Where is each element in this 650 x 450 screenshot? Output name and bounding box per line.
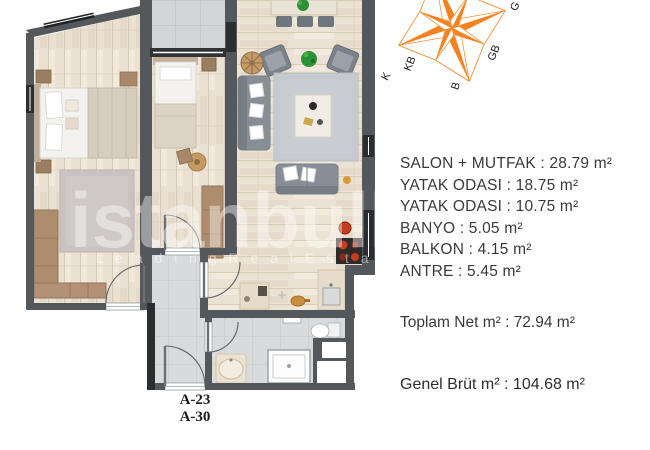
balcony-floor [150, 0, 225, 48]
chaise-sofa [238, 76, 270, 150]
kitchen-sink [323, 288, 340, 305]
nightstand [202, 58, 216, 71]
pillow [249, 125, 263, 139]
toilet [311, 323, 340, 338]
unit-number-label: A-23 A-30 [150, 392, 240, 426]
compass-label-northwest: KB [402, 55, 419, 73]
floor-plan-page: istanbulh L e a d i n g R e a l E s t a … [0, 0, 650, 450]
wall-step [345, 265, 375, 275]
shower [268, 350, 310, 383]
watermark: istanbulh L e a d i n g R e a l E s t a [70, 176, 417, 266]
compass-label-south: G [508, 0, 523, 13]
wall-left [26, 33, 34, 310]
compass-label-southwest: GB [486, 43, 503, 62]
round-decor-table [241, 52, 263, 74]
coffee-table [295, 95, 331, 137]
chair [177, 148, 193, 164]
wall [26, 303, 106, 310]
total-gross-area: Genel Brüt m² : 104.68 m² [400, 376, 585, 394]
nightstand [36, 70, 51, 83]
room-area-list: SALON + MUTFAK : 28.79 m² YATAK ODASI : … [400, 153, 645, 282]
dining-chair [297, 16, 313, 27]
blanket [155, 104, 196, 148]
pillow [249, 83, 264, 98]
room-line-salon-mutfak: SALON + MUTFAK : 28.79 m² [400, 153, 645, 175]
pillow [249, 103, 263, 117]
balcony-door [226, 22, 236, 52]
wall-hall-dark [147, 303, 155, 390]
hall-floor [152, 255, 205, 383]
pillow [45, 91, 63, 118]
room-line-banyo: BANYO : 5.05 m² [400, 218, 645, 240]
total-net-area: Toplam Net m² : 72.94 m² [400, 314, 575, 332]
shaft [317, 361, 346, 383]
plant [301, 51, 317, 67]
bathroom-sink [216, 354, 246, 383]
room-line-yatak-odasi-1: YATAK ODASI : 18.75 m² [400, 175, 645, 197]
side-table-top [194, 159, 200, 165]
pillow [160, 67, 191, 80]
pillow [45, 124, 62, 151]
room-line-balkon: BALKON : 4.15 m² [400, 239, 645, 261]
room-line-yatak-odasi-2: YATAK ODASI : 10.75 m² [400, 196, 645, 218]
island-item [258, 286, 267, 296]
wall-bath-top [200, 310, 355, 318]
compass-label-west: B [449, 81, 463, 92]
unit-number-line2: A-30 [150, 409, 240, 426]
cushion [66, 118, 78, 129]
room-line-antre: ANTRE : 5.45 m² [400, 261, 645, 283]
compass-label-north: K [379, 70, 393, 83]
wall [205, 318, 212, 322]
wall [200, 298, 208, 312]
watermark-tagline: L e a d i n g R e a l E s t a [96, 250, 373, 266]
island-item [244, 296, 250, 302]
shaft [322, 342, 346, 358]
wall [205, 352, 212, 390]
cutting-board [291, 296, 305, 306]
compass-rose: K KB B GB G [379, 0, 522, 99]
unit-number-line1: A-23 [150, 392, 240, 409]
dining-chair [276, 16, 292, 27]
faucet [329, 283, 332, 286]
bench [120, 72, 137, 86]
dining-chair [318, 16, 334, 27]
cushion [66, 100, 78, 111]
